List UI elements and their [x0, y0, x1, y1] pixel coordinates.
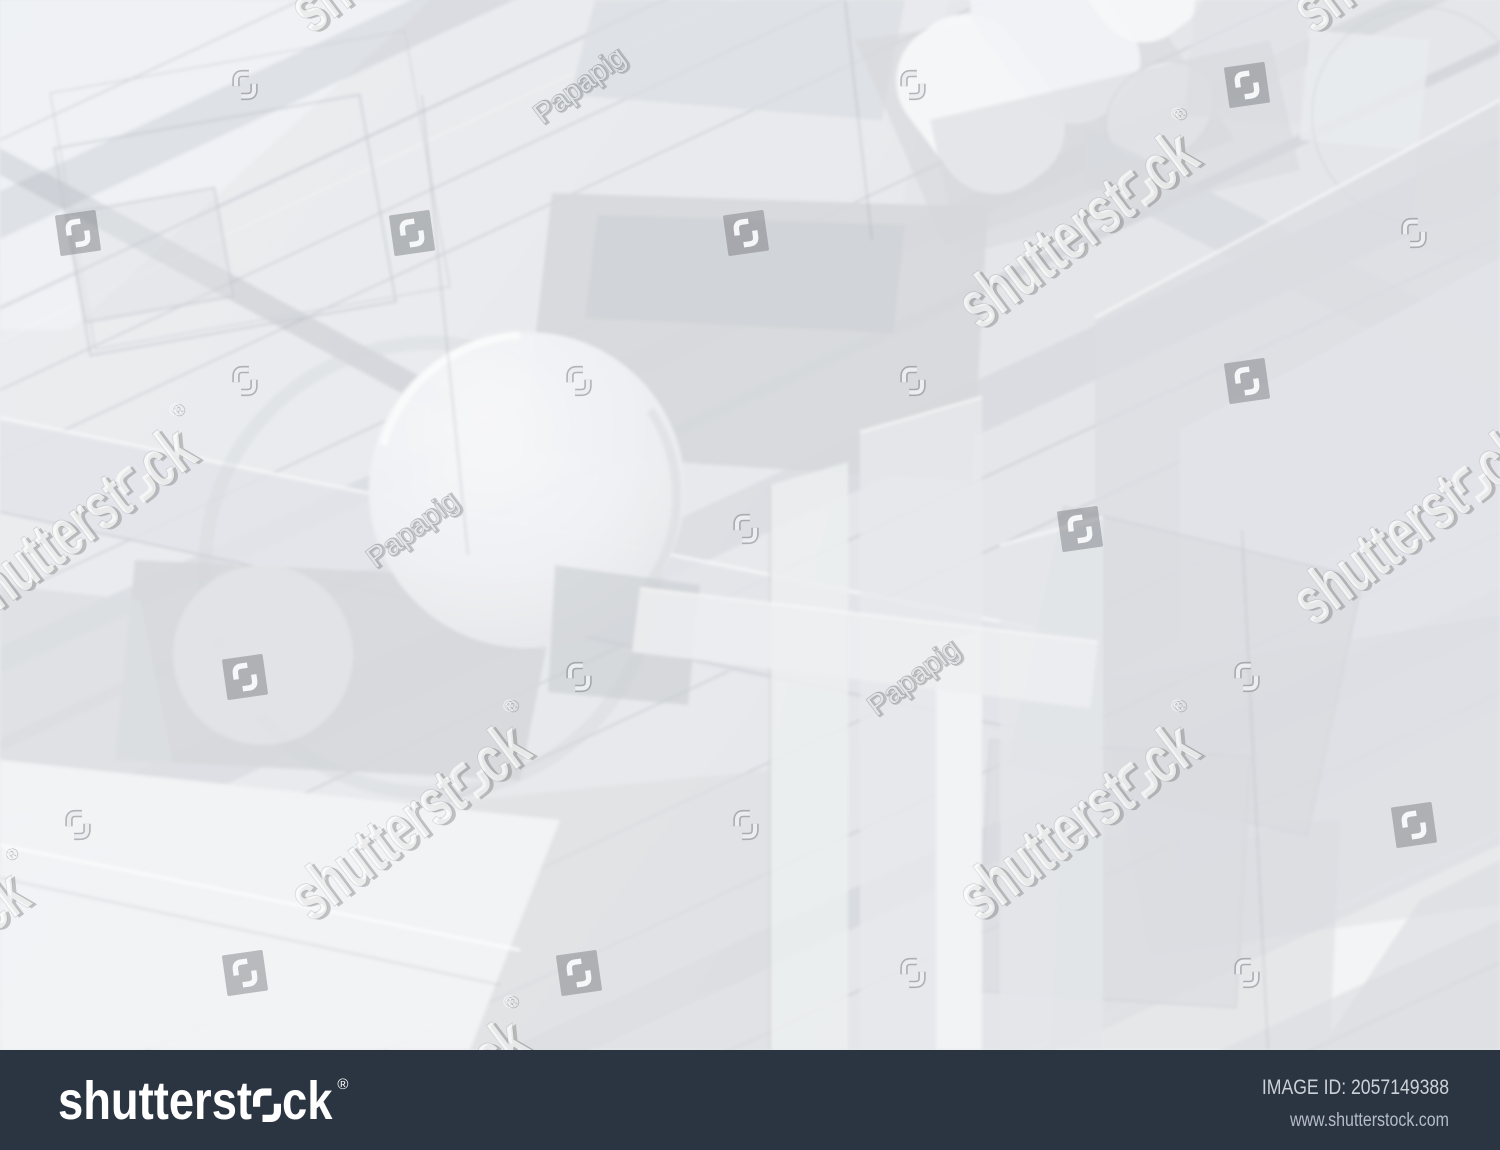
svg-text:®: ® [337, 1076, 348, 1093]
svg-text:shutterst: shutterst [58, 1070, 252, 1131]
svg-text:IMAGE ID: 2057149388: IMAGE ID: 2057149388 [1262, 1076, 1449, 1100]
svg-text:www.shutterstock.com: www.shutterstock.com [1289, 1109, 1449, 1131]
svg-text:ck: ck [282, 1070, 333, 1131]
